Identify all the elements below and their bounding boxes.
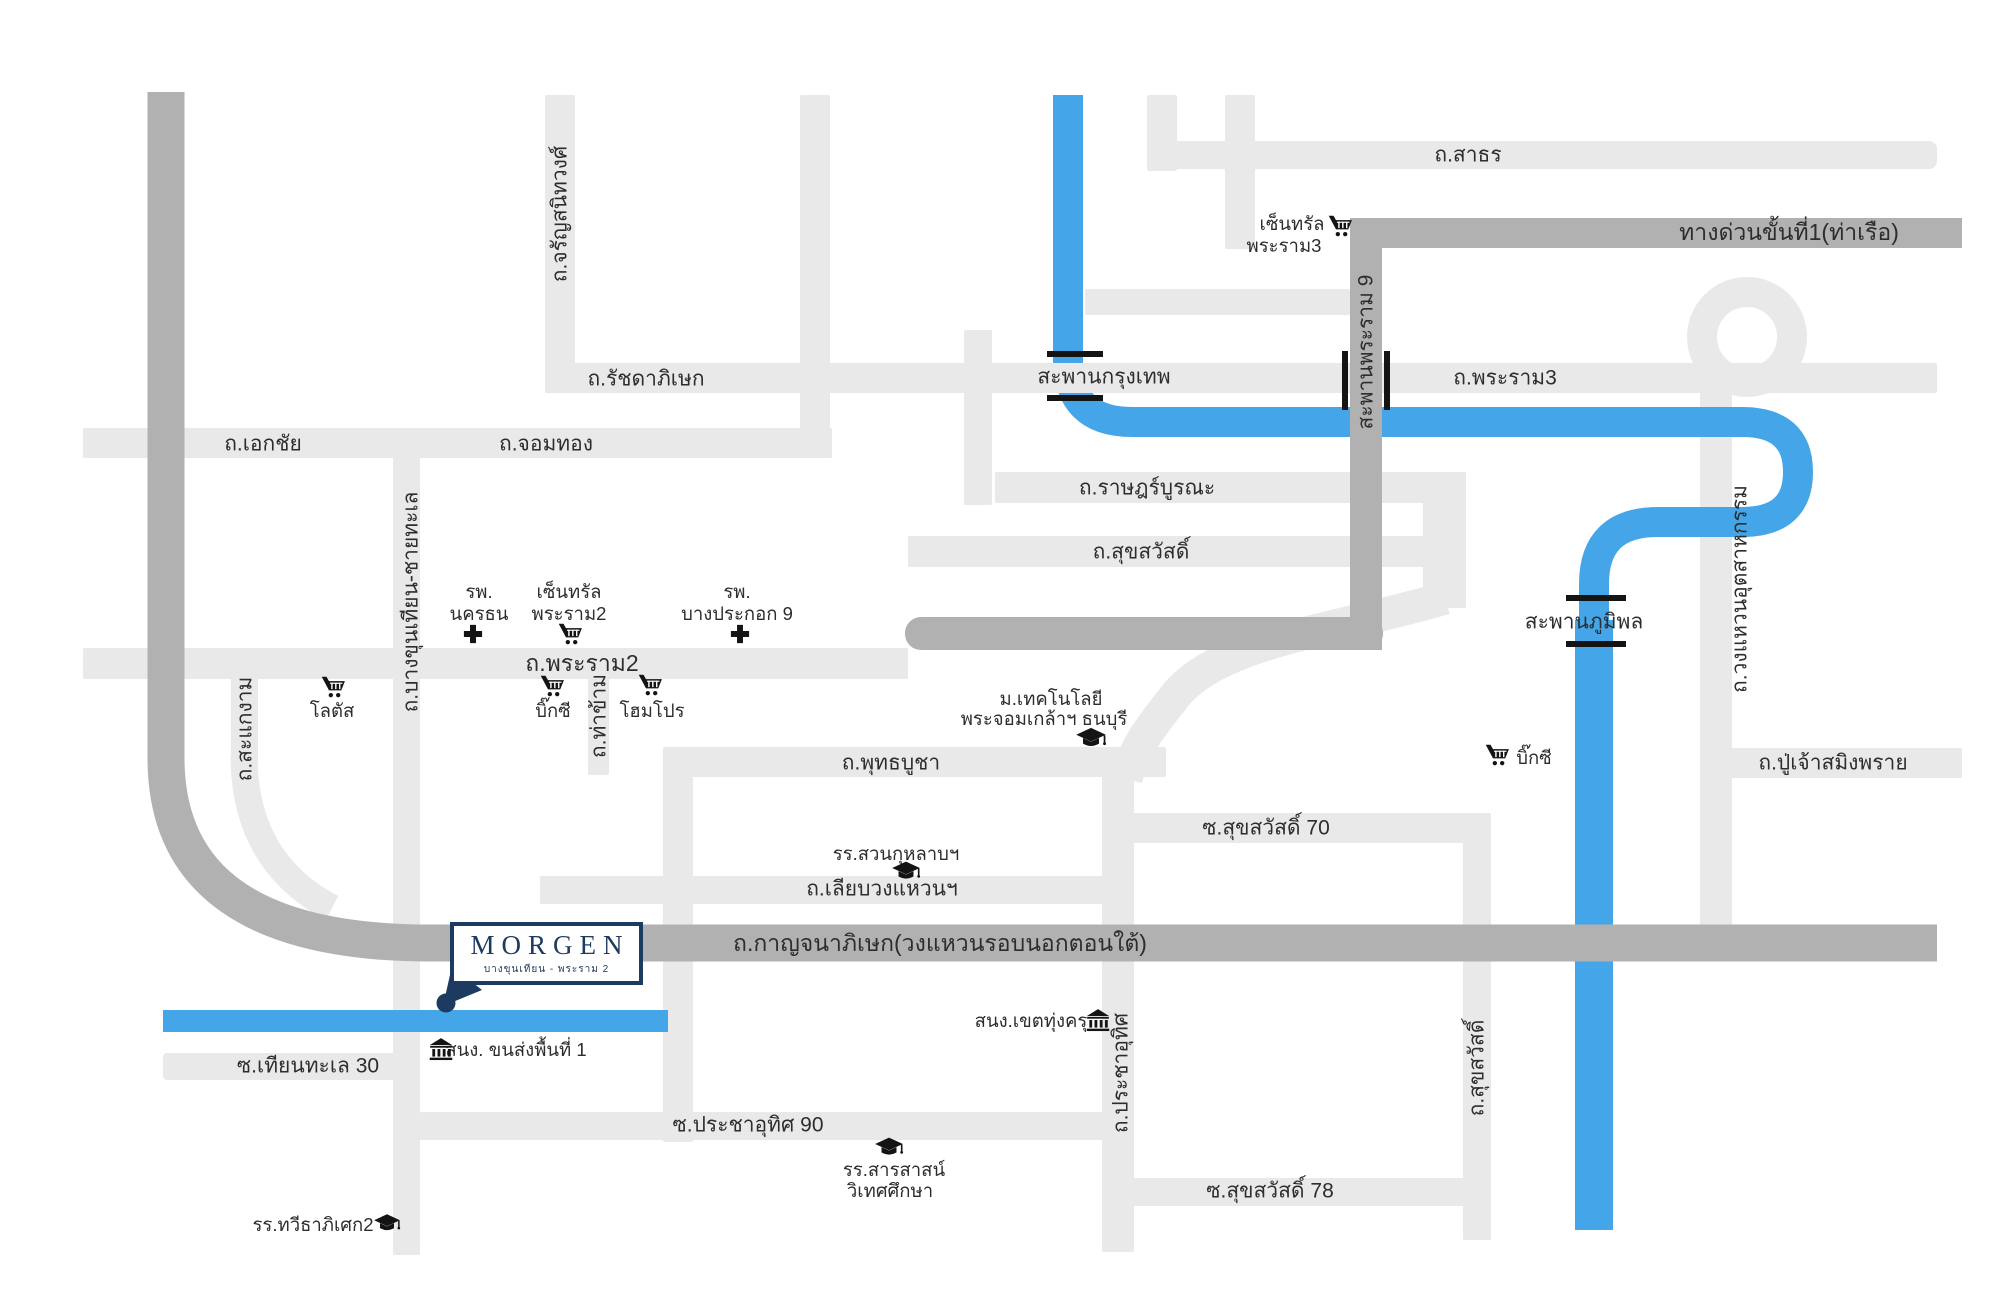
label-expressway-1-port: ทางด่วนขั้นที่1(ท่าเรือ) <box>1679 218 1899 248</box>
thungkhru-building-icon <box>1085 1007 1111 1033</box>
label-central-rama3-line1: เซ็นทรัล <box>1260 212 1325 236</box>
label-kanchanaphisek: ถ.กาญจนาภิเษก(วงแหวนรอบนอกตอนใต้) <box>733 929 1147 959</box>
label-ratchadaphisek: ถ.รัชดาภิเษก <box>587 365 704 392</box>
label-ratburana: ถ.ราษฎร์บูรณะ <box>1079 474 1215 501</box>
label-suksawat-70: ซ.สุขสวัสดิ์ 70 <box>1202 814 1330 841</box>
label-bigc-east: บิ๊กซี <box>1516 746 1552 770</box>
label-saphan-bhumibol: สะพานภูมิพล <box>1525 608 1643 635</box>
ramp-loop <box>1702 292 1792 382</box>
bangpakok9-cross-icon <box>730 624 751 645</box>
label-bangkhunthian-chaithale: ถ.บางขุนเทียน-ชายทะเล <box>397 492 424 713</box>
label-charansanitwong: ถ.จรัญสนิทวงศ์ <box>546 146 573 282</box>
label-wongwaen-utsahakam: ถ.วงแหวนอุตสาหกรรม <box>1726 485 1753 693</box>
label-hospital-nakhonthon-line2: นครธน <box>450 602 509 626</box>
label-prachauthit: ถ.ประชาอุทิศ <box>1107 1013 1134 1133</box>
lotus-cart-icon <box>320 675 346 701</box>
label-rama3: ถ.พระราม3 <box>1453 364 1557 391</box>
label-suksawat-78: ซ.สุขสวัสดิ์ 78 <box>1206 1177 1334 1204</box>
taweethapisek2-gradcap-icon <box>373 1213 401 1235</box>
kmutt-gradcap-icon <box>1075 727 1107 752</box>
label-bigc-west: บิ๊กซี <box>535 699 571 723</box>
label-liap-wongwaen: ถ.เลียบวงแหวนฯ <box>806 875 958 902</box>
label-transport-office-area1: สนง. ขนส่งพื้นที่ 1 <box>445 1038 586 1062</box>
label-prachauthit-90: ซ.ประชาอุทิศ 90 <box>673 1111 824 1138</box>
bigc-east-cart-icon <box>1484 743 1510 769</box>
label-sathorn: ถ.สาธร <box>1434 141 1501 168</box>
project-subtitle: บางขุนเทียน - พระราม 2 <box>454 962 639 977</box>
label-central-rama3-line2: พระราม3 <box>1247 234 1322 258</box>
label-homepro: โฮมโปร <box>619 699 684 723</box>
label-suksawat: ถ.สุขสวัสดิ์ <box>1093 538 1190 565</box>
label-hospital-bangpakok9-line1: รพ. <box>723 580 750 604</box>
central-rama3-cart-icon <box>1327 214 1353 240</box>
central-rama2-cart-icon <box>557 622 583 648</box>
label-saphan-krungthep: สะพานกรุงเทพ <box>1037 363 1170 390</box>
label-thianthale-30: ซ.เทียนทะเล 30 <box>237 1052 379 1079</box>
transport-building-icon <box>428 1036 454 1062</box>
label-saphan-rama9: สะพานพระราม 9 <box>1352 275 1379 430</box>
road-network <box>0 0 1994 1306</box>
label-hospital-nakhonthon-line1: รพ. <box>465 580 492 604</box>
label-sakaengam: ถ.สะแกงาม <box>231 677 258 782</box>
local-roads <box>83 95 1962 1255</box>
label-thungkhru-district-office: สนง.เขตทุ่งครุ <box>975 1009 1088 1033</box>
label-puchao-samingphrai: ถ.ปู่เจ้าสมิงพราย <box>1758 749 1907 776</box>
bigc-west-cart-icon <box>539 674 565 700</box>
label-lotus: โลตัส <box>310 699 355 723</box>
nakhonthon-cross-icon <box>463 624 484 645</box>
sarasas-gradcap-icon <box>874 1136 904 1159</box>
map-canvas: MORGEN บางขุนเทียน - พระราม 2 ถ.สาธรทางด… <box>0 0 1994 1306</box>
label-hospital-bangpakok9-line2: บางประกอก 9 <box>681 602 793 626</box>
label-central-rama2-line1: เซ็นทรัล <box>537 580 602 604</box>
project-name: MORGEN <box>454 930 639 961</box>
label-phutthabucha: ถ.พุทธบูชา <box>842 749 940 776</box>
label-ekachai: ถ.เอกชัย <box>224 430 302 457</box>
label-chomthong: ถ.จอมทอง <box>499 430 593 457</box>
project-logo: MORGEN บางขุนเทียน - พระราม 2 <box>450 922 643 985</box>
label-sarasas-school-line2: วิเทศศึกษา <box>847 1179 933 1203</box>
suankularb-gradcap-icon <box>891 860 921 883</box>
label-suksawat-vertical: ถ.สุขสวัสดิ์ <box>1463 1020 1490 1117</box>
homepro-cart-icon <box>637 673 663 699</box>
label-thakham: ถ.ท่าข้าม <box>585 674 612 758</box>
label-taweethapisek2-school: รร.ทวีธาภิเศก2 <box>252 1213 373 1237</box>
